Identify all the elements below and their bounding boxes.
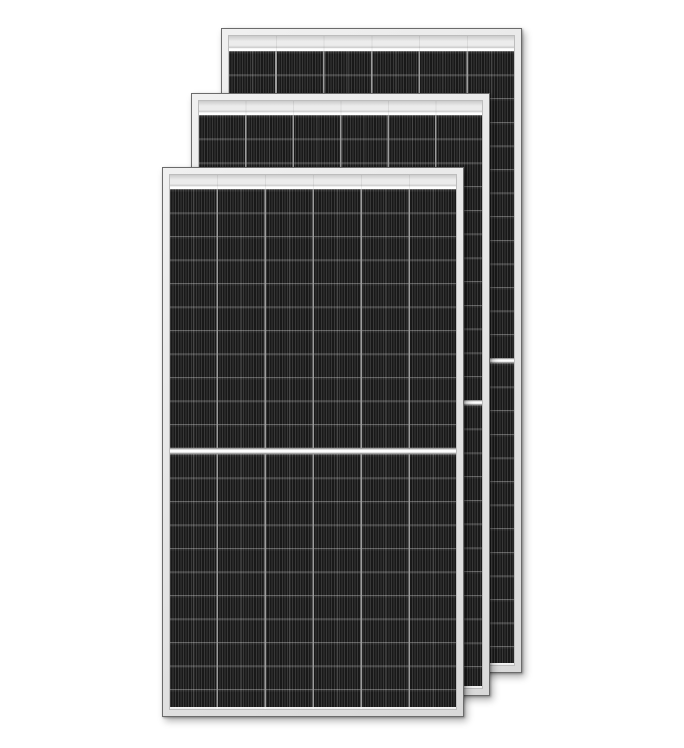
solar-panel-front [162, 167, 464, 717]
product-image-canvas [0, 0, 684, 748]
cell-matrix-upper [170, 189, 456, 448]
cell-matrix-lower [170, 454, 456, 709]
panel-glass-front [169, 174, 457, 710]
panel-top-frame-band [170, 175, 456, 189]
panel-top-frame-band [229, 36, 514, 51]
panel-top-frame-band [199, 101, 482, 115]
